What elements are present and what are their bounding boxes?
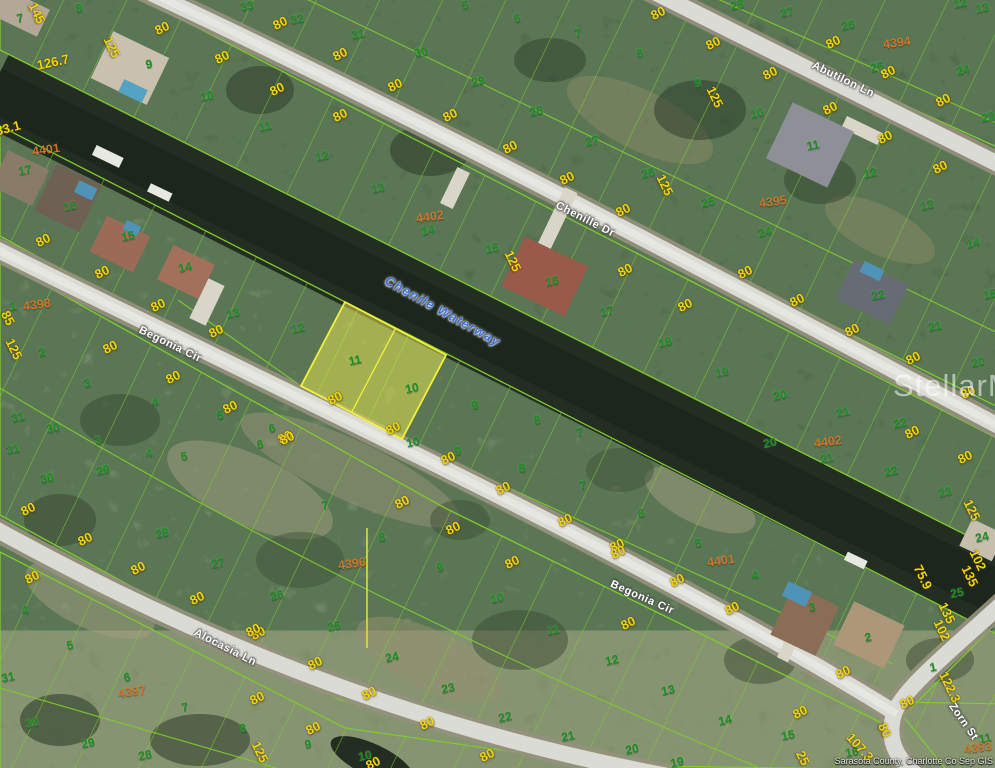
aerial-parcel-map[interactable]: 3332313029282726282726252423121356789101… [0, 0, 995, 768]
aerial-imagery [0, 0, 995, 768]
